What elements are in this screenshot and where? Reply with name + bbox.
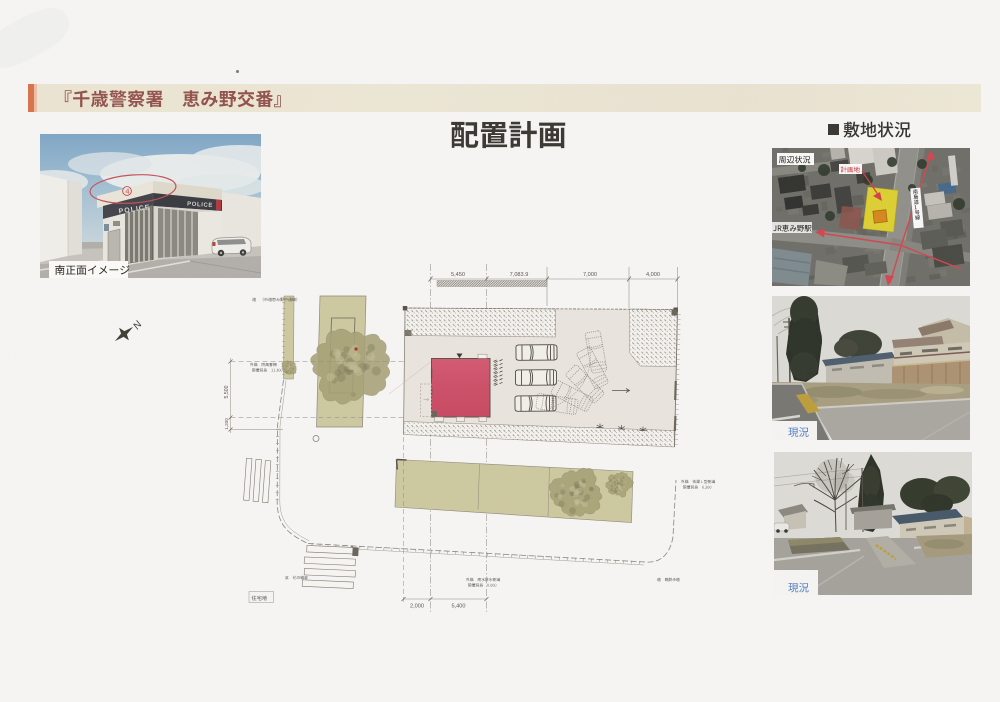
svg-text:4,000: 4,000 bbox=[646, 272, 660, 278]
svg-text:5,500: 5,500 bbox=[224, 385, 230, 398]
svg-text:N: N bbox=[131, 319, 145, 332]
svg-text:2,000: 2,000 bbox=[410, 604, 424, 610]
svg-text:5,400: 5,400 bbox=[452, 604, 466, 610]
svg-text:7,083.9: 7,083.9 bbox=[510, 272, 529, 278]
svg-text:7,000: 7,000 bbox=[583, 272, 597, 278]
svg-text:5,450: 5,450 bbox=[451, 272, 465, 278]
svg-text:1,200: 1,200 bbox=[224, 418, 229, 430]
